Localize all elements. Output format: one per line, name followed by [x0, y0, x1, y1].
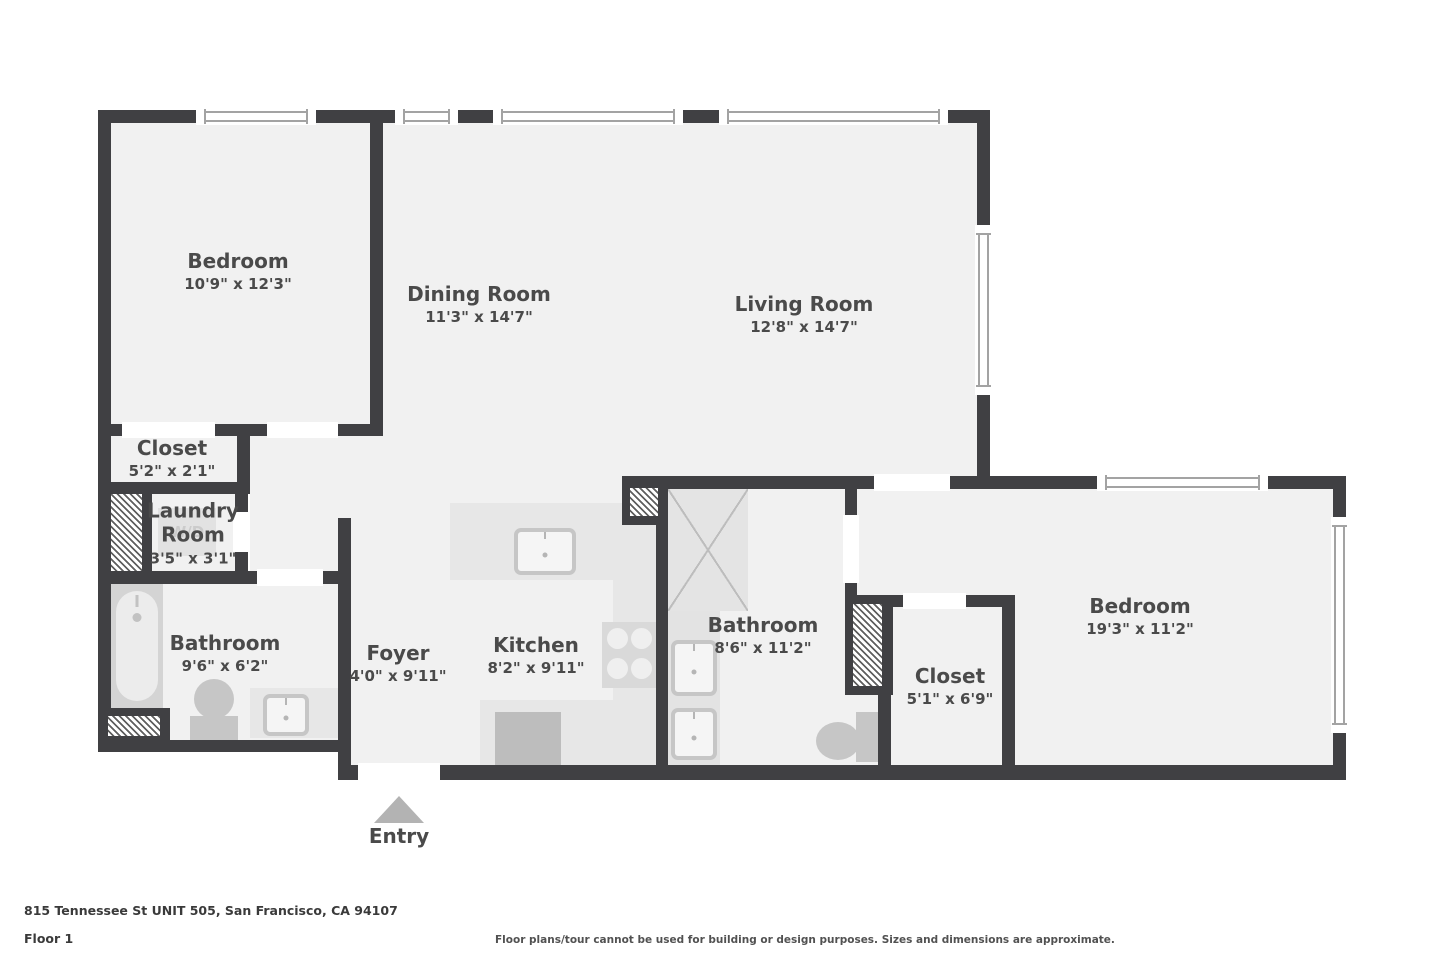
room-dims: 9'6" x 6'2" [170, 657, 281, 675]
stove-burner [631, 658, 652, 679]
entry-label: Entry [369, 824, 429, 848]
room-name: Bedroom [184, 249, 292, 273]
floor-label: Floor 1 [24, 931, 73, 946]
room-name: Closet [907, 664, 994, 688]
wall [1002, 595, 1015, 765]
room-name: Closet [129, 436, 216, 460]
room-dims: 8'6" x 11'2" [708, 639, 819, 657]
door-opening [874, 474, 950, 491]
window [975, 225, 992, 395]
room-name: Kitchen [487, 633, 584, 657]
window [493, 108, 683, 125]
toilet-base [190, 716, 238, 742]
room-name: Living Room [735, 292, 874, 316]
room-label-bathroom-1: Bathroom 9'6" x 6'2" [170, 631, 281, 675]
room-name: Bathroom [708, 613, 819, 637]
room-name: Bedroom [1086, 594, 1194, 618]
room-dims: 19'3" x 11'2" [1086, 620, 1194, 638]
room-label-bedroom-2: Bedroom 19'3" x 11'2" [1086, 594, 1194, 638]
stove-burner [607, 628, 628, 649]
room-dims: 5'1" x 6'9" [907, 690, 994, 708]
room-dims: 4'0" x 9'11" [349, 667, 446, 685]
window [1331, 517, 1348, 733]
hatched-shaft [630, 488, 658, 516]
wall [338, 765, 1346, 780]
wall [656, 476, 668, 765]
room-label-bedroom-1: Bedroom 10'9" x 12'3" [184, 249, 292, 293]
hatched-shaft [108, 716, 160, 736]
stove-icon [602, 622, 656, 688]
door-opening [843, 515, 859, 583]
window [1097, 474, 1268, 491]
toilet-icon [816, 722, 860, 760]
room-name: Foyer [349, 641, 446, 665]
room-label-living-room: Living Room 12'8" x 14'7" [735, 292, 874, 336]
room-dims: 12'8" x 14'7" [735, 318, 874, 336]
room-label-foyer: Foyer 4'0" x 9'11" [349, 641, 446, 685]
room-label-kitchen: Kitchen 8'2" x 9'11" [487, 633, 584, 677]
tub-drain [133, 613, 142, 622]
room-label-closet-2: Closet 5'1" x 6'9" [907, 664, 994, 708]
room-name: Dining Room [407, 282, 551, 306]
stove-burner [607, 658, 628, 679]
room-label-dining-room: Dining Room 11'3" x 14'7" [407, 282, 551, 326]
toilet-icon [194, 679, 234, 719]
room-dims: 3'5" x 3'1" [138, 549, 248, 567]
room-label-bathroom-2: Bathroom 8'6" x 11'2" [708, 613, 819, 657]
room-dims: 8'2" x 9'11" [487, 659, 584, 677]
window [395, 108, 458, 125]
room-dims: 5'2" x 2'1" [129, 462, 216, 480]
door-opening [257, 569, 323, 586]
sink-icon [671, 708, 717, 760]
floor-plan: W/D [0, 0, 1440, 960]
sink-icon [263, 694, 309, 736]
entry-door-opening [358, 763, 440, 782]
floor-corridor [338, 476, 351, 518]
tub-faucet [136, 595, 139, 607]
wall [98, 482, 250, 494]
room-name: Laundry Room [138, 499, 248, 548]
wall [370, 110, 383, 436]
door-opening [903, 593, 966, 609]
entry-arrow-icon [374, 796, 424, 823]
stove-burner [631, 628, 652, 649]
window [719, 108, 948, 125]
room-label-closet-1: Closet 5'2" x 2'1" [129, 436, 216, 480]
door-opening [267, 422, 338, 438]
room-name: Bathroom [170, 631, 281, 655]
disclaimer-text: Floor plans/tour cannot be used for buil… [495, 934, 1115, 946]
bathtub-icon [111, 584, 163, 708]
room-label-laundry-room: Laundry Room 3'5" x 3'1" [138, 499, 248, 568]
window [196, 108, 316, 125]
address-text: 815 Tennessee St UNIT 505, San Francisco… [24, 903, 398, 918]
room-dims: 10'9" x 12'3" [184, 275, 292, 293]
kitchen-counter [613, 580, 656, 622]
room-dims: 11'3" x 14'7" [407, 308, 551, 326]
kitchen-sink-icon [514, 528, 576, 575]
hatched-shaft [853, 604, 882, 686]
shower-icon [668, 489, 748, 611]
bathtub-basin [116, 591, 158, 701]
refrigerator-icon [495, 712, 561, 765]
